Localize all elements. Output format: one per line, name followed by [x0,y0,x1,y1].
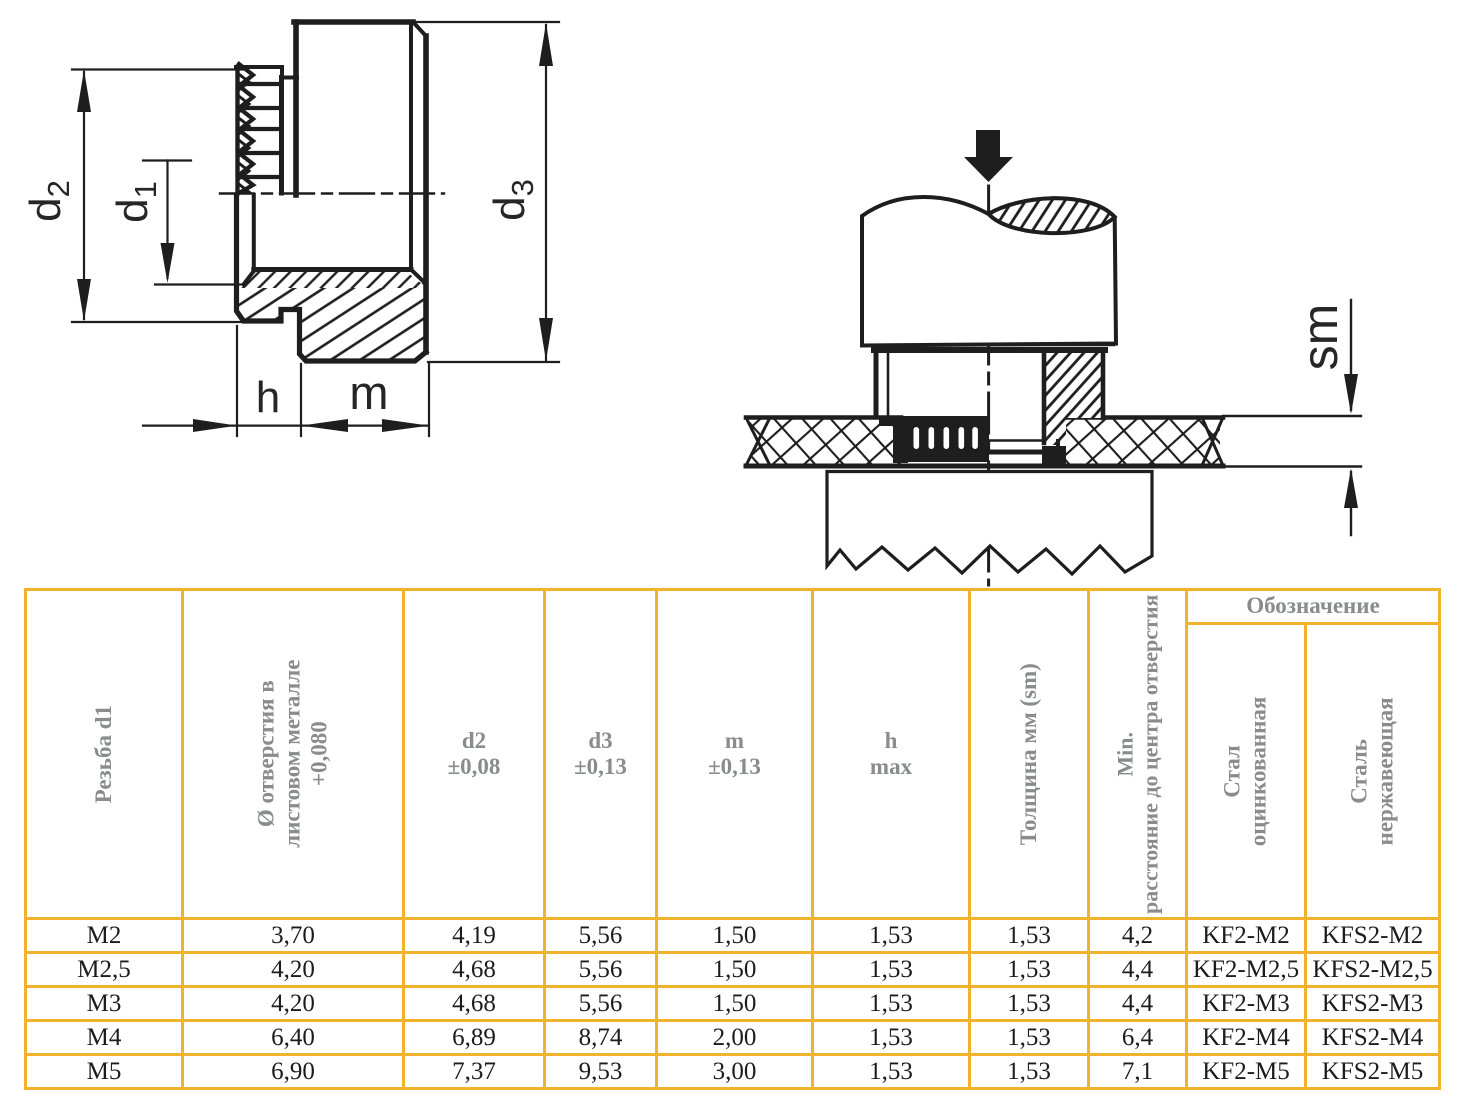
svg-text:m: m [349,366,388,419]
svg-text:d2: d2 [21,180,76,222]
svg-text:d3: d3 [485,179,540,221]
svg-text:d1: d1 [108,181,163,223]
svg-text:h: h [256,373,280,422]
svg-text:sm: sm [1292,304,1348,371]
